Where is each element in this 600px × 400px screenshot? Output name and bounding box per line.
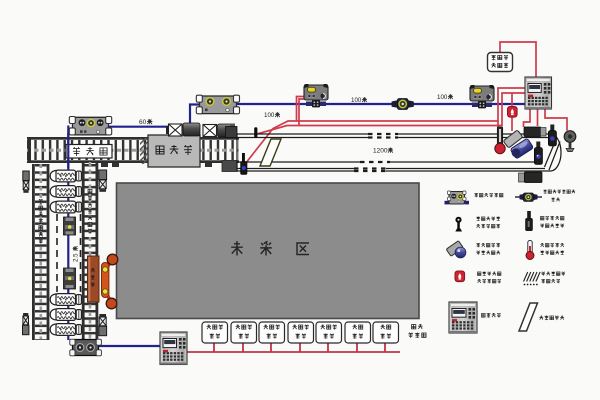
svg-text:100: 100 xyxy=(437,94,448,101)
svg-text:1200: 1200 xyxy=(373,148,388,155)
svg-text:2.5: 2.5 xyxy=(73,253,80,262)
svg-text:60: 60 xyxy=(139,119,147,126)
svg-text:100: 100 xyxy=(351,97,362,104)
svg-text:100: 100 xyxy=(264,112,275,119)
